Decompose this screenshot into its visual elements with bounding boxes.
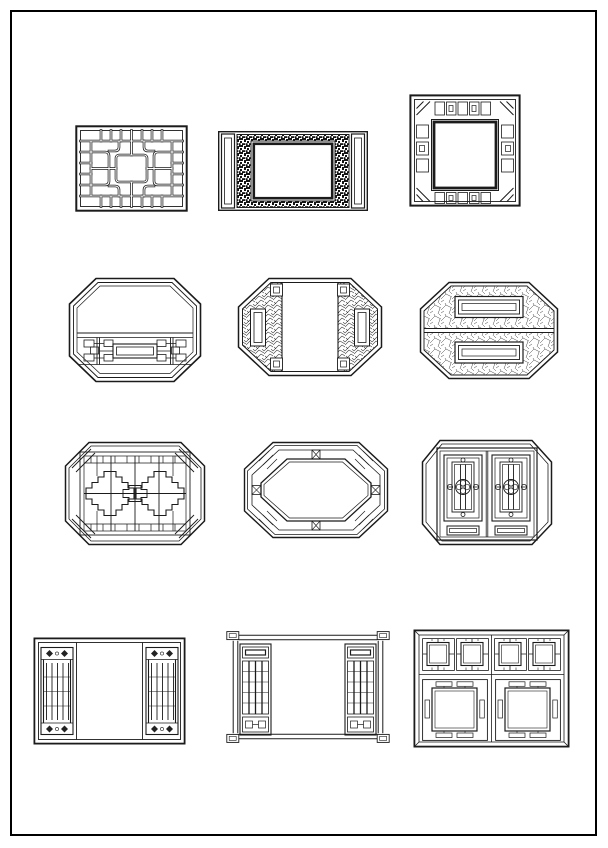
octagon-ice-crackle-icon [419,281,559,380]
six-panel-lattice-window-drawing [413,629,570,748]
catalog-sheet [0,0,608,848]
square-baluster-frame-icon [409,94,521,207]
octagon-concentric-border-drawing [243,441,389,539]
octagon-lattice-band-icon [68,277,202,383]
bracket-frame-lattice-panels-icon [226,628,390,746]
octagon-stepped-diamond-icon [64,441,206,546]
slatted-side-panels-drawing [33,637,186,745]
slatted-side-panels-icon [33,637,186,745]
key-fret-lattice-icon [75,125,188,212]
octagon-carved-sides-drawing [237,277,383,377]
dark-fretwork-frame-drawing [218,131,368,211]
octagon-double-doors-drawing [421,439,553,546]
octagon-double-doors-icon [421,439,553,546]
dark-fretwork-frame-icon [218,131,368,211]
octagon-ice-crackle-drawing [419,281,559,380]
octagon-stepped-diamond-drawing [64,441,206,546]
square-baluster-frame-drawing [409,94,521,207]
six-panel-lattice-window-icon [413,629,570,748]
octagon-carved-sides-icon [237,277,383,377]
bracket-frame-lattice-panels-drawing [226,628,390,746]
key-fret-lattice-window-drawing [75,125,188,212]
octagon-concentric-border-icon [243,441,389,539]
octagon-lattice-band-drawing [68,277,202,383]
